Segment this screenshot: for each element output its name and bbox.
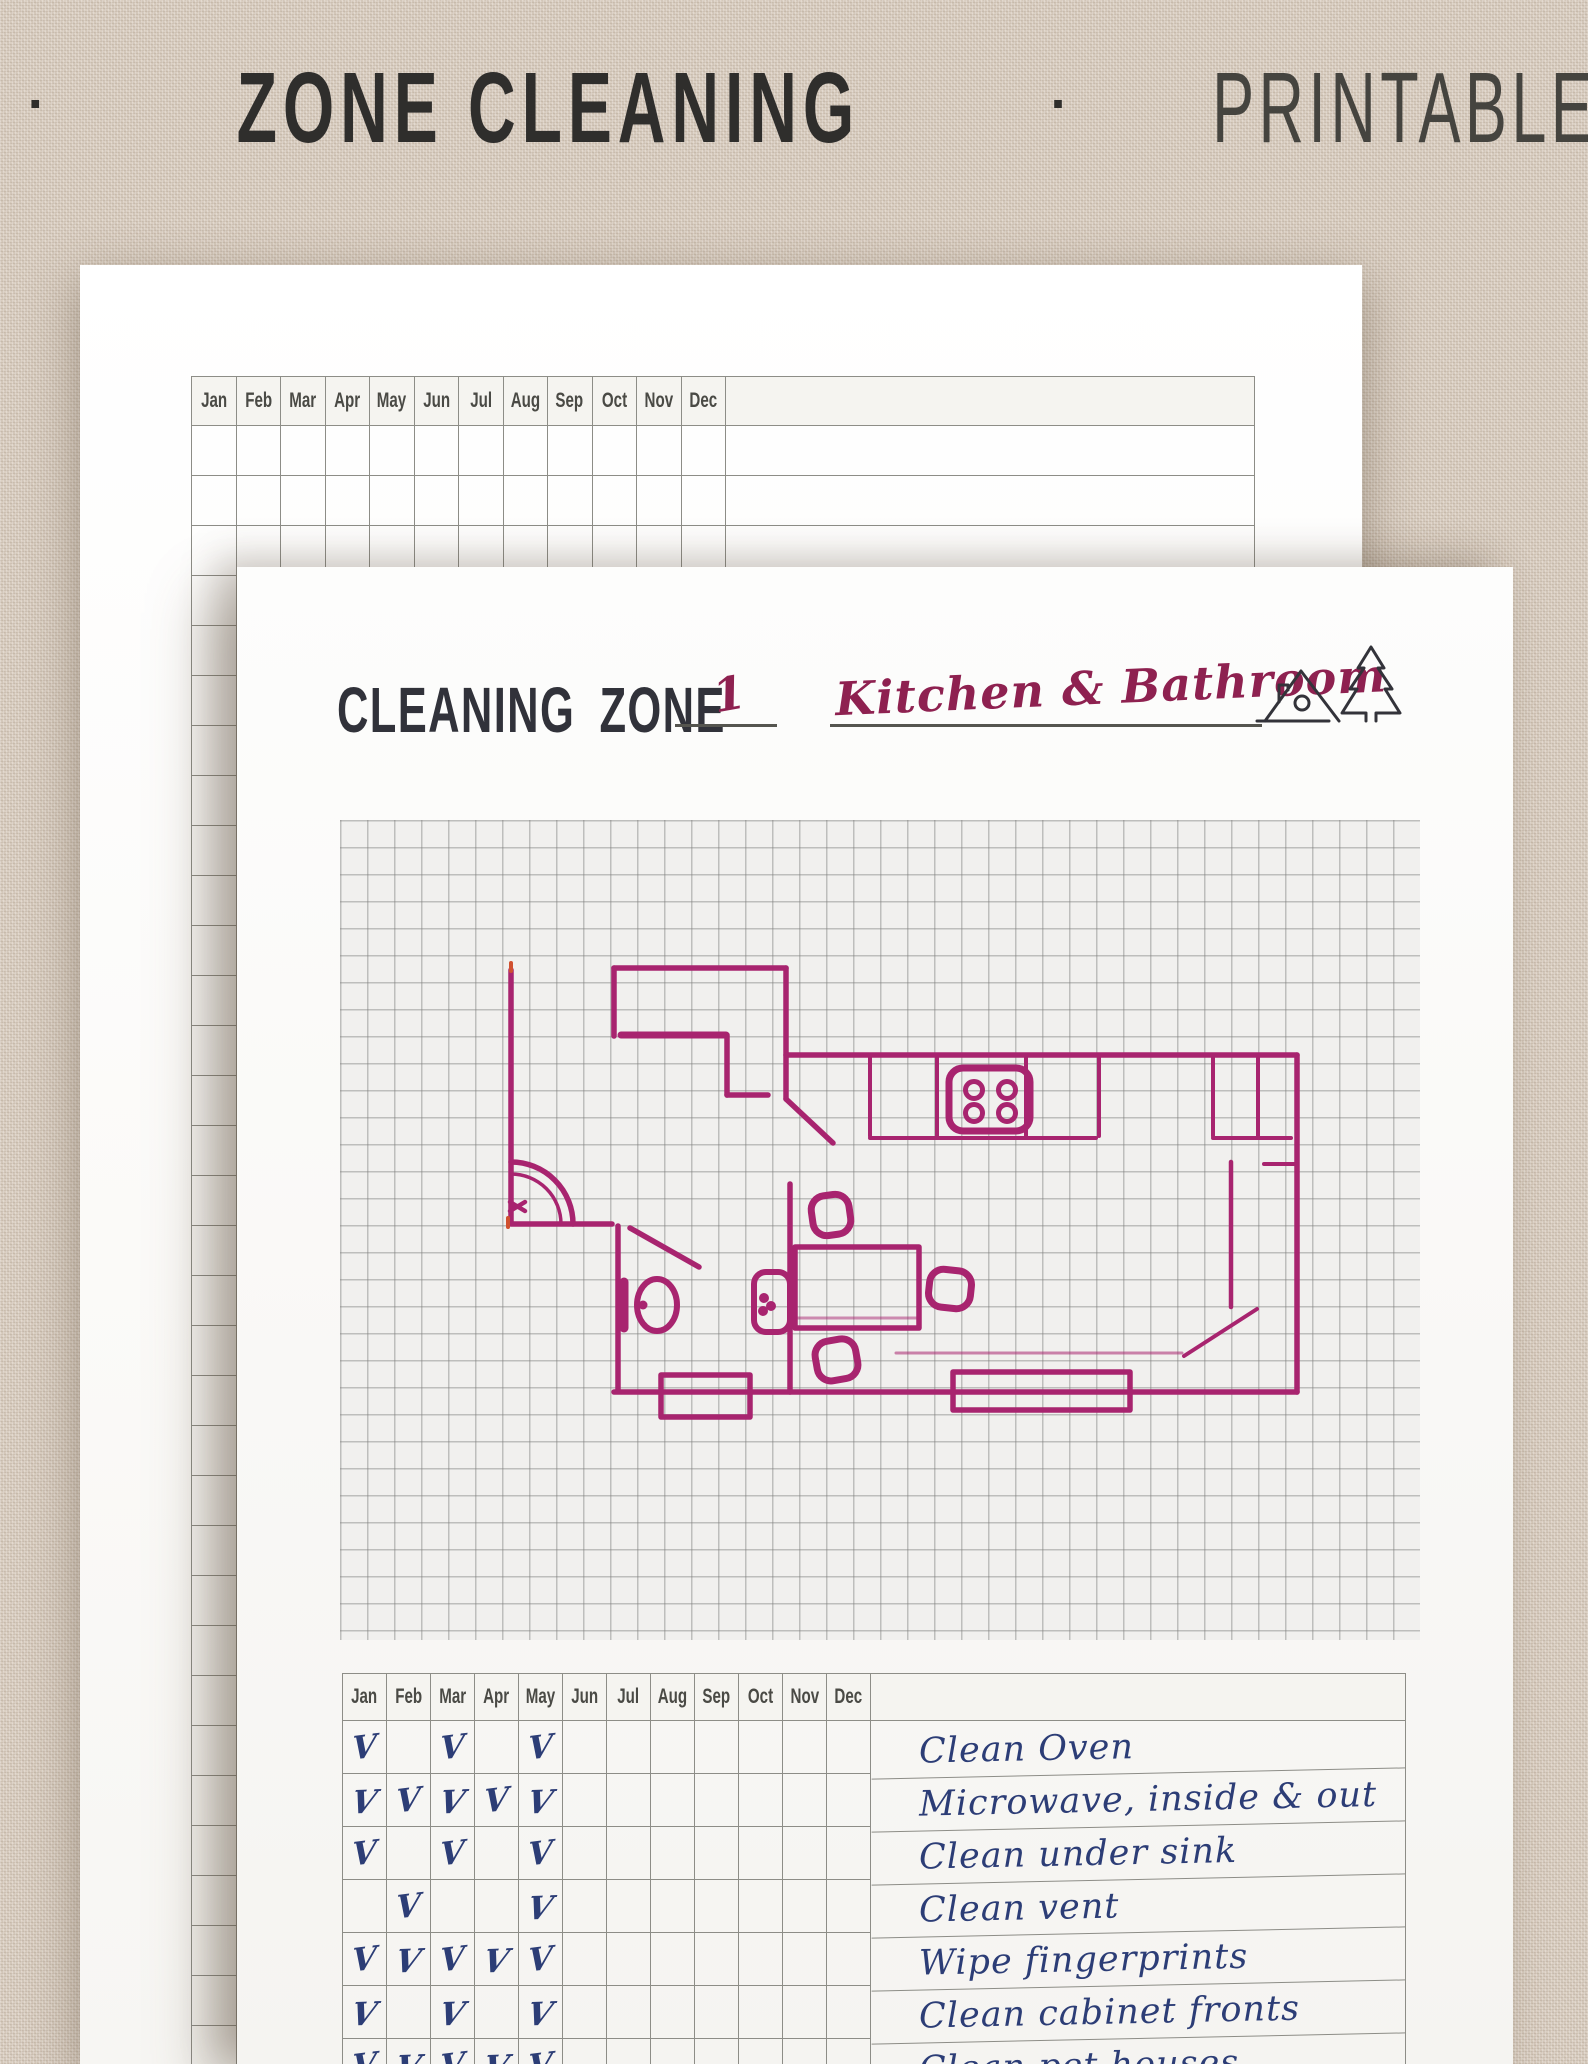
title-separator-dot: ·: [1051, 77, 1069, 131]
burner: [966, 1105, 983, 1122]
month-header-cell: Sep: [695, 1674, 739, 1721]
title-separator-dot: ·: [28, 77, 46, 131]
empty-month-cell: [192, 426, 237, 476]
zone-name-handwritten: Kitchen & Bathroom: [834, 654, 1260, 726]
month-label: Dec: [835, 1685, 863, 1709]
checkmark: V: [440, 1729, 465, 1764]
checkmark: V: [440, 1835, 465, 1870]
empty-month-cell: [192, 1976, 237, 2026]
counter-right-diagonal: [1184, 1309, 1257, 1356]
empty-month-cell: [192, 2026, 237, 2064]
check-cell: [739, 1986, 783, 2039]
checkmark: V: [484, 1782, 509, 1817]
check-cell: [739, 1880, 783, 1933]
month-label: Jun: [571, 1685, 598, 1709]
burner: [999, 1082, 1016, 1099]
empty-task-cell: [726, 426, 1254, 476]
month-header-cell: Apr: [326, 377, 371, 426]
checkmark: V: [525, 1785, 555, 1818]
check-cell: [651, 1827, 695, 1880]
check-cell: [695, 1721, 739, 1774]
check-cell: [563, 1880, 607, 1933]
check-cell: [563, 2039, 607, 2064]
month-label: May: [377, 389, 406, 413]
empty-month-cell: [415, 426, 460, 476]
check-cell: V: [519, 1721, 563, 1774]
empty-month-cell: [192, 1176, 237, 1226]
empty-month-cell: [192, 826, 237, 876]
month-header-cell: Jun: [415, 377, 460, 426]
check-cell: [695, 1933, 739, 1986]
floor-plan-drawing: [340, 820, 1420, 1640]
empty-month-cell: [637, 426, 682, 476]
empty-month-cell: [281, 426, 326, 476]
month-label: Mar: [289, 389, 316, 413]
check-cell: [387, 1721, 431, 1774]
empty-month-cell: [192, 1776, 237, 1826]
zone-number-underline: [675, 724, 777, 727]
month-label: Sep: [703, 1685, 731, 1709]
page-title: A5 · ZONE CLEANING · PRINTABLE: [0, 48, 1588, 168]
month-label: Feb: [245, 389, 272, 413]
checkmark: V: [352, 1729, 377, 1764]
empty-month-cell: [415, 476, 460, 526]
empty-month-cell: [192, 676, 237, 726]
check-cell: V: [343, 2039, 387, 2064]
product-mockup: A5 · ZONE CLEANING · PRINTABLE JanFebMar…: [0, 0, 1588, 2064]
checkmark: V: [481, 2050, 511, 2064]
check-cell: V: [475, 2039, 519, 2064]
check-cell: [651, 1774, 695, 1827]
month-label: Oct: [602, 389, 627, 413]
check-cell: V: [387, 1774, 431, 1827]
empty-month-cell: [192, 1726, 237, 1776]
task-header-cell: [726, 377, 1254, 426]
month-header-cell: May: [370, 377, 415, 426]
check-cell: V: [343, 1721, 387, 1774]
check-cell: V: [343, 1986, 387, 2039]
empty-month-cell: [459, 426, 504, 476]
checkmark: V: [352, 1941, 377, 1976]
task-header-cell: [871, 1674, 1405, 1721]
check-cell: V: [431, 2039, 475, 2064]
check-cell: V: [431, 1827, 475, 1880]
check-cell: [827, 2039, 871, 2064]
checkmark: V: [352, 1835, 377, 1870]
check-cell: V: [431, 1933, 475, 1986]
empty-month-cell: [192, 1076, 237, 1126]
check-cell: [739, 1774, 783, 1827]
empty-month-cell: [192, 1826, 237, 1876]
empty-month-cell: [192, 576, 237, 626]
check-cell: [563, 1827, 607, 1880]
empty-month-cell: [548, 426, 593, 476]
checkmark: V: [352, 2047, 377, 2064]
check-cell: [739, 2039, 783, 2064]
check-cell: V: [387, 2039, 431, 2064]
chair: [813, 1337, 860, 1384]
empty-month-cell: [637, 476, 682, 526]
empty-month-cell: [192, 476, 237, 526]
month-label: Dec: [689, 389, 717, 413]
check-cell: V: [519, 1774, 563, 1827]
toilet-flush-mark: [639, 1301, 648, 1310]
check-cell: V: [387, 1880, 431, 1933]
month-label: Aug: [658, 1685, 687, 1709]
empty-task-cell: [726, 476, 1254, 526]
month-label: May: [526, 1685, 555, 1709]
checkmark: V: [396, 1888, 421, 1923]
check-cell: V: [343, 1774, 387, 1827]
cleaning-zone-page: CLEANING ZONE 1 Kitchen & Bathroom: [237, 567, 1513, 2064]
empty-month-cell: [192, 1526, 237, 1576]
check-cell: [651, 2039, 695, 2064]
check-cell: [739, 1721, 783, 1774]
checkmark: V: [349, 1785, 379, 1818]
check-cell: [783, 1880, 827, 1933]
check-cell: [431, 1880, 475, 1933]
month-header-cell: Oct: [593, 377, 638, 426]
check-cell: [783, 1986, 827, 2039]
empty-month-cell: [192, 1476, 237, 1526]
month-header-cell: Nov: [783, 1674, 827, 1721]
empty-month-cell: [548, 476, 593, 526]
empty-month-cell: [281, 476, 326, 526]
empty-month-cell: [192, 1376, 237, 1426]
empty-month-cell: [192, 776, 237, 826]
empty-month-cell: [192, 976, 237, 1026]
faucet-mark: [759, 1293, 769, 1303]
empty-month-cell: [192, 1026, 237, 1076]
check-cell: V: [519, 1986, 563, 2039]
graph-paper: [340, 820, 1420, 1640]
title-size-label: A5: [0, 52, 1, 163]
check-cell: [387, 1986, 431, 2039]
month-label: Jan: [201, 389, 227, 413]
month-header-cell: Sep: [548, 377, 593, 426]
month-label: Jul: [618, 1685, 640, 1709]
check-cell: [607, 1827, 651, 1880]
empty-month-cell: [326, 476, 371, 526]
checkmark: V: [525, 1891, 555, 1924]
window: [661, 1375, 750, 1417]
check-cell: V: [343, 1827, 387, 1880]
checkmark: V: [393, 1944, 423, 1977]
burner: [966, 1082, 983, 1099]
check-cell: V: [519, 1827, 563, 1880]
cleaning-zone-heading: CLEANING ZONE: [337, 673, 726, 747]
empty-month-cell: [504, 476, 549, 526]
empty-month-cell: [192, 926, 237, 976]
check-cell: [695, 1827, 739, 1880]
month-label: Jul: [470, 389, 492, 413]
empty-month-cell: [192, 1276, 237, 1326]
checkmark: V: [440, 2047, 465, 2064]
empty-month-cell: [192, 1426, 237, 1476]
zone-name-underline: [830, 724, 1262, 727]
burner: [999, 1105, 1016, 1122]
empty-month-cell: [370, 476, 415, 526]
empty-month-cell: [192, 1876, 237, 1926]
checkmark: V: [396, 1782, 421, 1817]
check-cell: [607, 2039, 651, 2064]
entry-door-arc: [511, 1162, 573, 1224]
month-header-cell: Apr: [475, 1674, 519, 1721]
check-cell: [475, 1827, 519, 1880]
checkmark: V: [393, 2050, 423, 2064]
check-cell: V: [519, 1880, 563, 1933]
month-header-cell: Dec: [827, 1674, 871, 1721]
checkmark: V: [528, 1941, 553, 1976]
wall-diagonal: [786, 1099, 833, 1143]
month-header-cell: Mar: [431, 1674, 475, 1721]
month-header-cell: Jan: [343, 1674, 387, 1721]
check-cell: [563, 1721, 607, 1774]
month-label: Aug: [511, 389, 540, 413]
check-cell: [827, 1880, 871, 1933]
check-cell: [651, 1721, 695, 1774]
check-cell: [475, 1721, 519, 1774]
empty-month-cell: [192, 626, 237, 676]
check-cell: V: [431, 1986, 475, 2039]
empty-month-cell: [192, 1576, 237, 1626]
check-cell: [739, 1933, 783, 1986]
month-label: Jan: [351, 1685, 377, 1709]
empty-month-cell: [593, 476, 638, 526]
check-cell: V: [475, 1774, 519, 1827]
empty-month-cell: [192, 526, 237, 576]
check-cell: [695, 2039, 739, 2064]
check-cell: V: [519, 2039, 563, 2064]
month-label: Oct: [748, 1685, 773, 1709]
empty-month-cell: [326, 426, 371, 476]
round-window: [1295, 696, 1309, 710]
check-cell: [475, 1880, 519, 1933]
check-cell: [783, 1721, 827, 1774]
empty-month-cell: [504, 426, 549, 476]
month-header-cell: Feb: [387, 1674, 431, 1721]
check-cell: [563, 1933, 607, 1986]
house-and-pine-tree-icon: [1255, 641, 1407, 727]
check-cell: [343, 1880, 387, 1933]
check-cell: [475, 1986, 519, 2039]
bathroom-door-leaf: [630, 1228, 699, 1267]
empty-month-cell: [192, 1226, 237, 1276]
stove-cooktop: [949, 1068, 1030, 1131]
empty-month-cell: [237, 426, 282, 476]
empty-month-cell: [192, 876, 237, 926]
check-cell: [827, 1721, 871, 1774]
checkmark: V: [481, 1944, 511, 1977]
chair: [809, 1193, 852, 1238]
month-label: Nov: [790, 1685, 819, 1709]
month-header-cell: Aug: [504, 377, 549, 426]
month-header-cell: Dec: [682, 377, 727, 426]
check-cell: V: [387, 1933, 431, 1986]
check-cell: [607, 1933, 651, 1986]
check-cell: [607, 1986, 651, 2039]
check-cell: [563, 1986, 607, 2039]
check-cell: [739, 1827, 783, 1880]
checkmark: V: [437, 1785, 467, 1818]
empty-month-cell: [682, 426, 727, 476]
title-type-label: PRINTABLE: [1212, 51, 1588, 166]
empty-month-cell: [192, 1326, 237, 1376]
month-label: Sep: [556, 389, 584, 413]
check-cell: [827, 1774, 871, 1827]
check-cell: V: [431, 1774, 475, 1827]
month-header-cell: Mar: [281, 377, 326, 426]
check-cell: [783, 1774, 827, 1827]
month-label: Mar: [439, 1685, 466, 1709]
check-cell: [651, 1986, 695, 2039]
month-header-cell: Jul: [607, 1674, 651, 1721]
checkmark: V: [528, 1729, 553, 1764]
month-header-cell: Jul: [459, 377, 504, 426]
month-label: Apr: [334, 389, 360, 413]
checkmark: V: [528, 1835, 553, 1870]
check-cell: [783, 2039, 827, 2064]
check-cell: [607, 1880, 651, 1933]
month-header-cell: Jan: [192, 377, 237, 426]
month-label: Nov: [644, 389, 673, 413]
check-cell: V: [343, 1933, 387, 1986]
pine-tree: [1342, 647, 1400, 721]
check-cell: V: [475, 1933, 519, 1986]
check-cell: [695, 1986, 739, 2039]
check-cell: [695, 1880, 739, 1933]
empty-month-cell: [192, 726, 237, 776]
check-cell: [827, 1986, 871, 2039]
month-header-cell: Oct: [739, 1674, 783, 1721]
month-header-cell: Nov: [637, 377, 682, 426]
month-label: Jun: [423, 389, 450, 413]
month-header-cell: May: [519, 1674, 563, 1721]
check-cell: [827, 1933, 871, 1986]
checkmark: V: [440, 1941, 465, 1976]
empty-month-cell: [192, 1126, 237, 1176]
dining-table: [795, 1247, 919, 1328]
month-label: Apr: [483, 1685, 509, 1709]
check-cell: V: [431, 1721, 475, 1774]
title-main-label: ZONE CLEANING: [236, 51, 860, 166]
month-header-cell: Jun: [563, 1674, 607, 1721]
empty-month-cell: [459, 476, 504, 526]
check-cell: [607, 1774, 651, 1827]
check-cell: [387, 1827, 431, 1880]
empty-month-cell: [192, 1626, 237, 1676]
check-cell: [607, 1721, 651, 1774]
check-cell: [651, 1880, 695, 1933]
empty-month-cell: [593, 426, 638, 476]
empty-month-cell: [192, 1926, 237, 1976]
checkmark: V: [349, 1997, 379, 2030]
faucet-mark: [758, 1306, 768, 1316]
zone-number-handwritten: 1: [685, 660, 773, 727]
month-label: Feb: [395, 1685, 422, 1709]
check-cell: [651, 1933, 695, 1986]
check-cell: [783, 1827, 827, 1880]
check-cell: V: [519, 1933, 563, 1986]
empty-month-cell: [237, 476, 282, 526]
checkmark: V: [528, 2047, 553, 2064]
checkmark: V: [437, 1997, 467, 2030]
month-header-cell: Aug: [651, 1674, 695, 1721]
chair: [927, 1268, 973, 1310]
empty-month-cell: [682, 476, 727, 526]
check-cell: [695, 1774, 739, 1827]
check-cell: [563, 1774, 607, 1827]
check-cell: [783, 1933, 827, 1986]
empty-month-cell: [192, 1676, 237, 1726]
month-header-cell: Feb: [237, 377, 282, 426]
check-cell: [827, 1827, 871, 1880]
empty-month-cell: [370, 426, 415, 476]
checkmark: V: [525, 1997, 555, 2030]
zone-checklist-table: JanFebMarAprMayJunJulAugSepOctNovDecVVVC…: [342, 1673, 1406, 2064]
